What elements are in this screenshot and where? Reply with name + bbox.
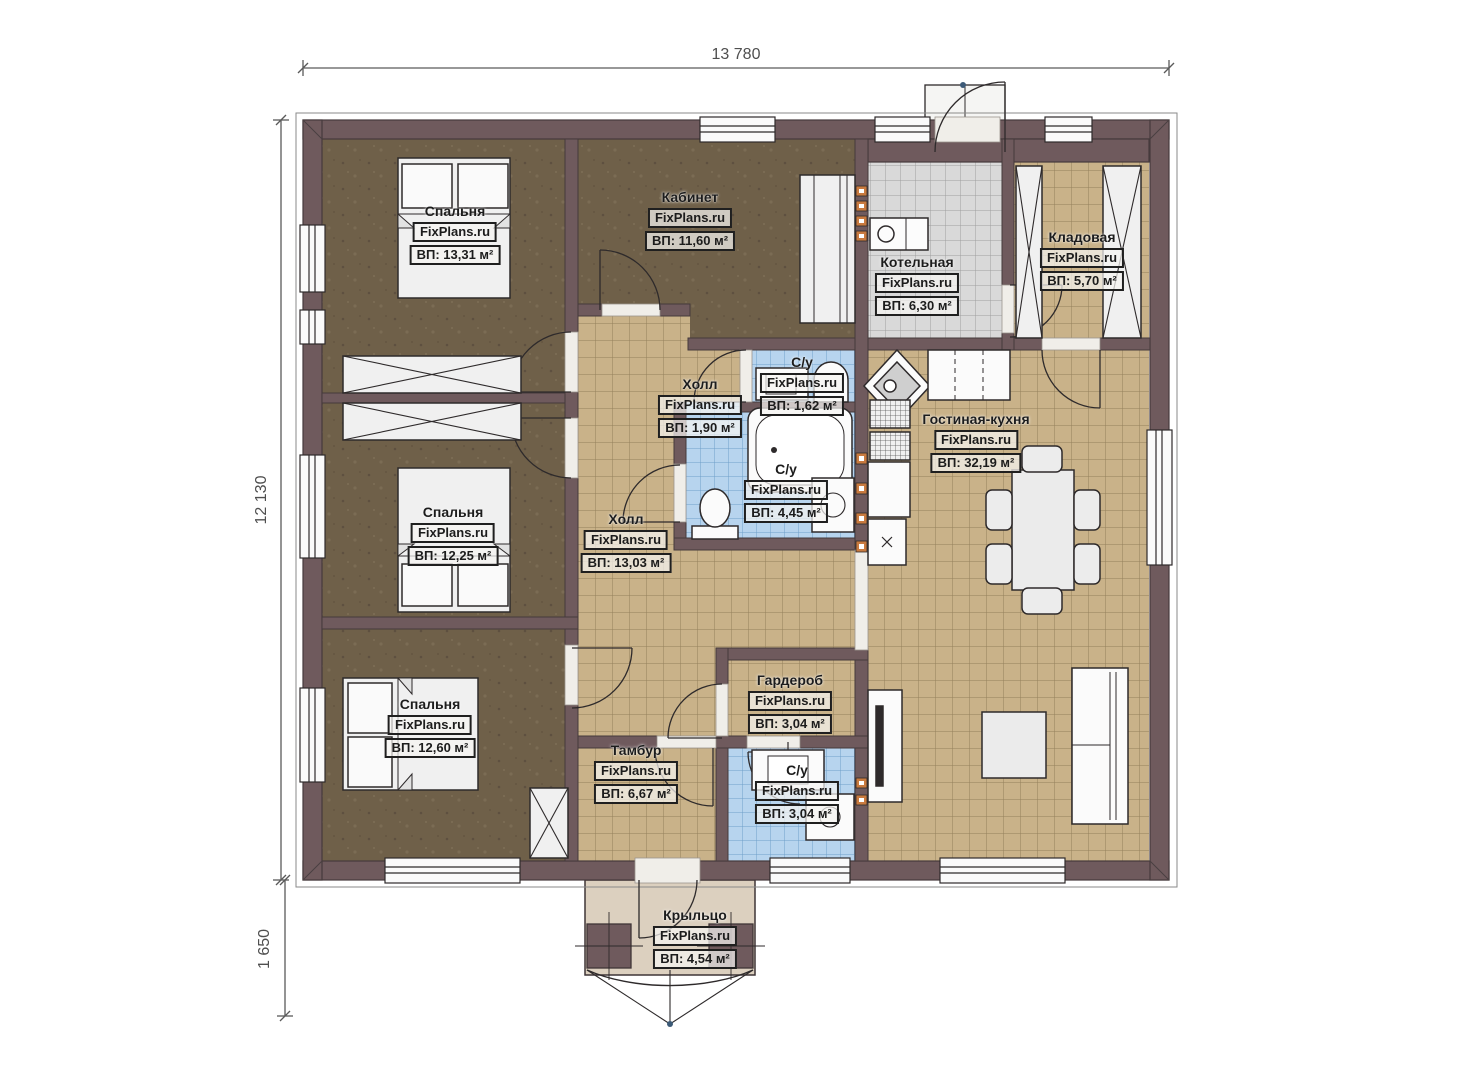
window-top-boiler (875, 117, 930, 142)
pantry-wardrobe-left (1016, 166, 1042, 338)
tv-stand (868, 690, 902, 802)
bed-1 (398, 158, 510, 298)
bed-3 (343, 678, 478, 790)
porch (575, 880, 765, 1027)
wc2-washer (806, 794, 854, 840)
wardrobe-bedroom3 (530, 788, 568, 858)
kitchen-fridge (868, 519, 906, 565)
dimension-top: 13 780 (712, 46, 761, 64)
dimension-porch: 1 650 (256, 929, 274, 969)
window-bottom-bedroom3 (385, 858, 520, 883)
dining-table (1012, 470, 1074, 590)
wardrobe-bedroom2 (343, 403, 521, 440)
window-bottom-living (940, 858, 1065, 883)
pantry-wardrobe-right (1103, 166, 1141, 338)
sofa (1072, 668, 1128, 824)
bed-2 (398, 468, 510, 612)
wc-small-sink (756, 368, 808, 400)
window-bottom-wc2 (770, 858, 850, 883)
floor-plan-drawing (0, 0, 1473, 1080)
office-closet (800, 175, 855, 323)
boiler-unit (870, 218, 928, 250)
wc-small-toilet (814, 362, 848, 402)
window-left-bedroom3 (300, 688, 325, 782)
dimension-left: 12 130 (253, 476, 271, 525)
bathroom-washer (812, 478, 854, 532)
kitchen-counter-top (928, 350, 1010, 400)
wardrobe-bedroom1 (343, 356, 521, 393)
coffee-table (982, 712, 1046, 778)
window-left-bedroom2 (300, 455, 325, 558)
kitchen-counter-left (868, 462, 910, 517)
window-top-pantry (1045, 117, 1092, 142)
floor-plan-page: 13 780 12 130 1 650 Спальня FixPlans.ru … (0, 0, 1473, 1080)
window-right-living (1147, 430, 1172, 565)
window-left-bedroom1 (300, 225, 325, 292)
window-top-office (700, 117, 775, 142)
window-left-bedroom1-small (300, 310, 325, 344)
